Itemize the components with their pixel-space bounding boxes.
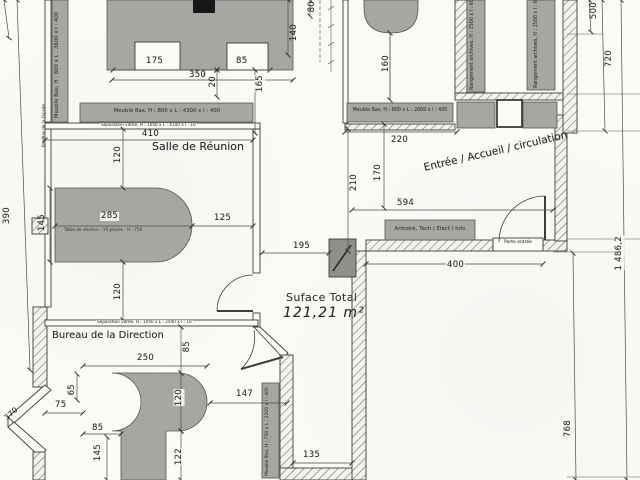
door-arc-meeting [217, 275, 253, 311]
dim-210: 210 [349, 174, 360, 191]
doors-group [217, 196, 545, 369]
dim-120-bottom: 120 [114, 283, 123, 300]
black-equipment-block [193, 0, 215, 13]
annotation-archives-a: Rangement archives, H : 2500 x l : 600 [471, 4, 476, 90]
annotation-cabinet-office: Meuble Bas, H : 750 x L : 2200 x l : 400 [266, 386, 271, 476]
annotation-cabinet-entry: Meuble Bas, H : 800 x L : 2000 x l : 400 [349, 109, 451, 114]
dim-1486: 1 486,2 [614, 236, 625, 271]
dim-135: 135 [303, 451, 320, 460]
dim-80: 80 [308, 1, 317, 12]
dim-125: 125 [214, 214, 231, 223]
round-table-top-right [364, 0, 418, 33]
door-arc-office [241, 330, 255, 369]
annotation-entry-door: Porte entrée [495, 241, 541, 246]
dim-170: 170 [374, 164, 383, 181]
dim-720: 720 [605, 50, 614, 67]
dim-250: 250 [137, 354, 154, 363]
annotation-window-left: Fenêtre de la façade [42, 104, 46, 147]
meeting-table [55, 188, 192, 262]
archives-strip-b [527, 0, 555, 90]
floor-plan-drawing [0, 0, 640, 480]
room-label-office: Bureau de la Direction [52, 331, 164, 341]
dim-220: 220 [391, 136, 408, 145]
dim-500: 500 [590, 2, 599, 19]
dim-160: 160 [382, 55, 391, 72]
dim-768: 768 [564, 420, 573, 437]
dim-350: 350 [189, 71, 206, 80]
surface-total-value: 121,21 m² [283, 306, 365, 320]
dim-147: 147 [236, 390, 253, 399]
dim-145-table: 145 [38, 214, 47, 231]
dim-390: 390 [3, 207, 12, 224]
door-arc-entry [499, 196, 545, 242]
dim-85-office: 85 [183, 341, 192, 352]
dim-400: 400 [446, 261, 465, 270]
floor-plan: Salle de Réunion Bureau de la Direction … [0, 0, 640, 480]
director-desk [112, 373, 207, 480]
surface-total-label: Suface Total [286, 292, 357, 303]
dim-75: 75 [55, 401, 66, 410]
dim-594: 594 [397, 199, 414, 208]
dim-65: 65 [68, 384, 77, 395]
dim-145: 145 [94, 444, 103, 461]
annotation-cabinet-top: Meuble Bas, H : 800 x L : 4300 x l : 400 [82, 109, 252, 114]
room-label-meeting: Salle de Réunion [152, 141, 244, 152]
dim-85-top: 85 [236, 57, 247, 66]
annotation-partition-meeting: Séparation vitrée, H : 1050 x L : 4100 x… [100, 123, 197, 127]
dim-140: 140 [290, 24, 299, 41]
column-block [497, 100, 522, 127]
dim-120-desk: 120 [174, 389, 185, 406]
dim-85-stem: 85 [91, 424, 104, 433]
dim-165: 165 [255, 75, 266, 92]
dim-410: 410 [142, 130, 159, 139]
dim-122: 122 [174, 448, 185, 465]
annotation-cabinet-left: Meuble Bas, H : 800 x L : 3800 x l : 400 [55, 6, 60, 118]
annotation-partition-office: Séparation vitrée, H : 1050 x L : 2500 x… [96, 320, 193, 324]
dim-120-top: 120 [114, 146, 123, 163]
dim-195: 195 [293, 242, 310, 251]
dim-20: 20 [209, 76, 218, 87]
dim-285: 285 [100, 212, 119, 221]
annotation-tech-cabinet: Armoire, Tech / Elect / Info [387, 227, 473, 232]
annotation-archives-b: Rangement archives, H : 2500 x l : 600 [535, 4, 540, 88]
dim-175: 175 [146, 57, 163, 66]
annotation-meeting-table: Table de réunion - 10 places - H : 750 [64, 228, 142, 232]
